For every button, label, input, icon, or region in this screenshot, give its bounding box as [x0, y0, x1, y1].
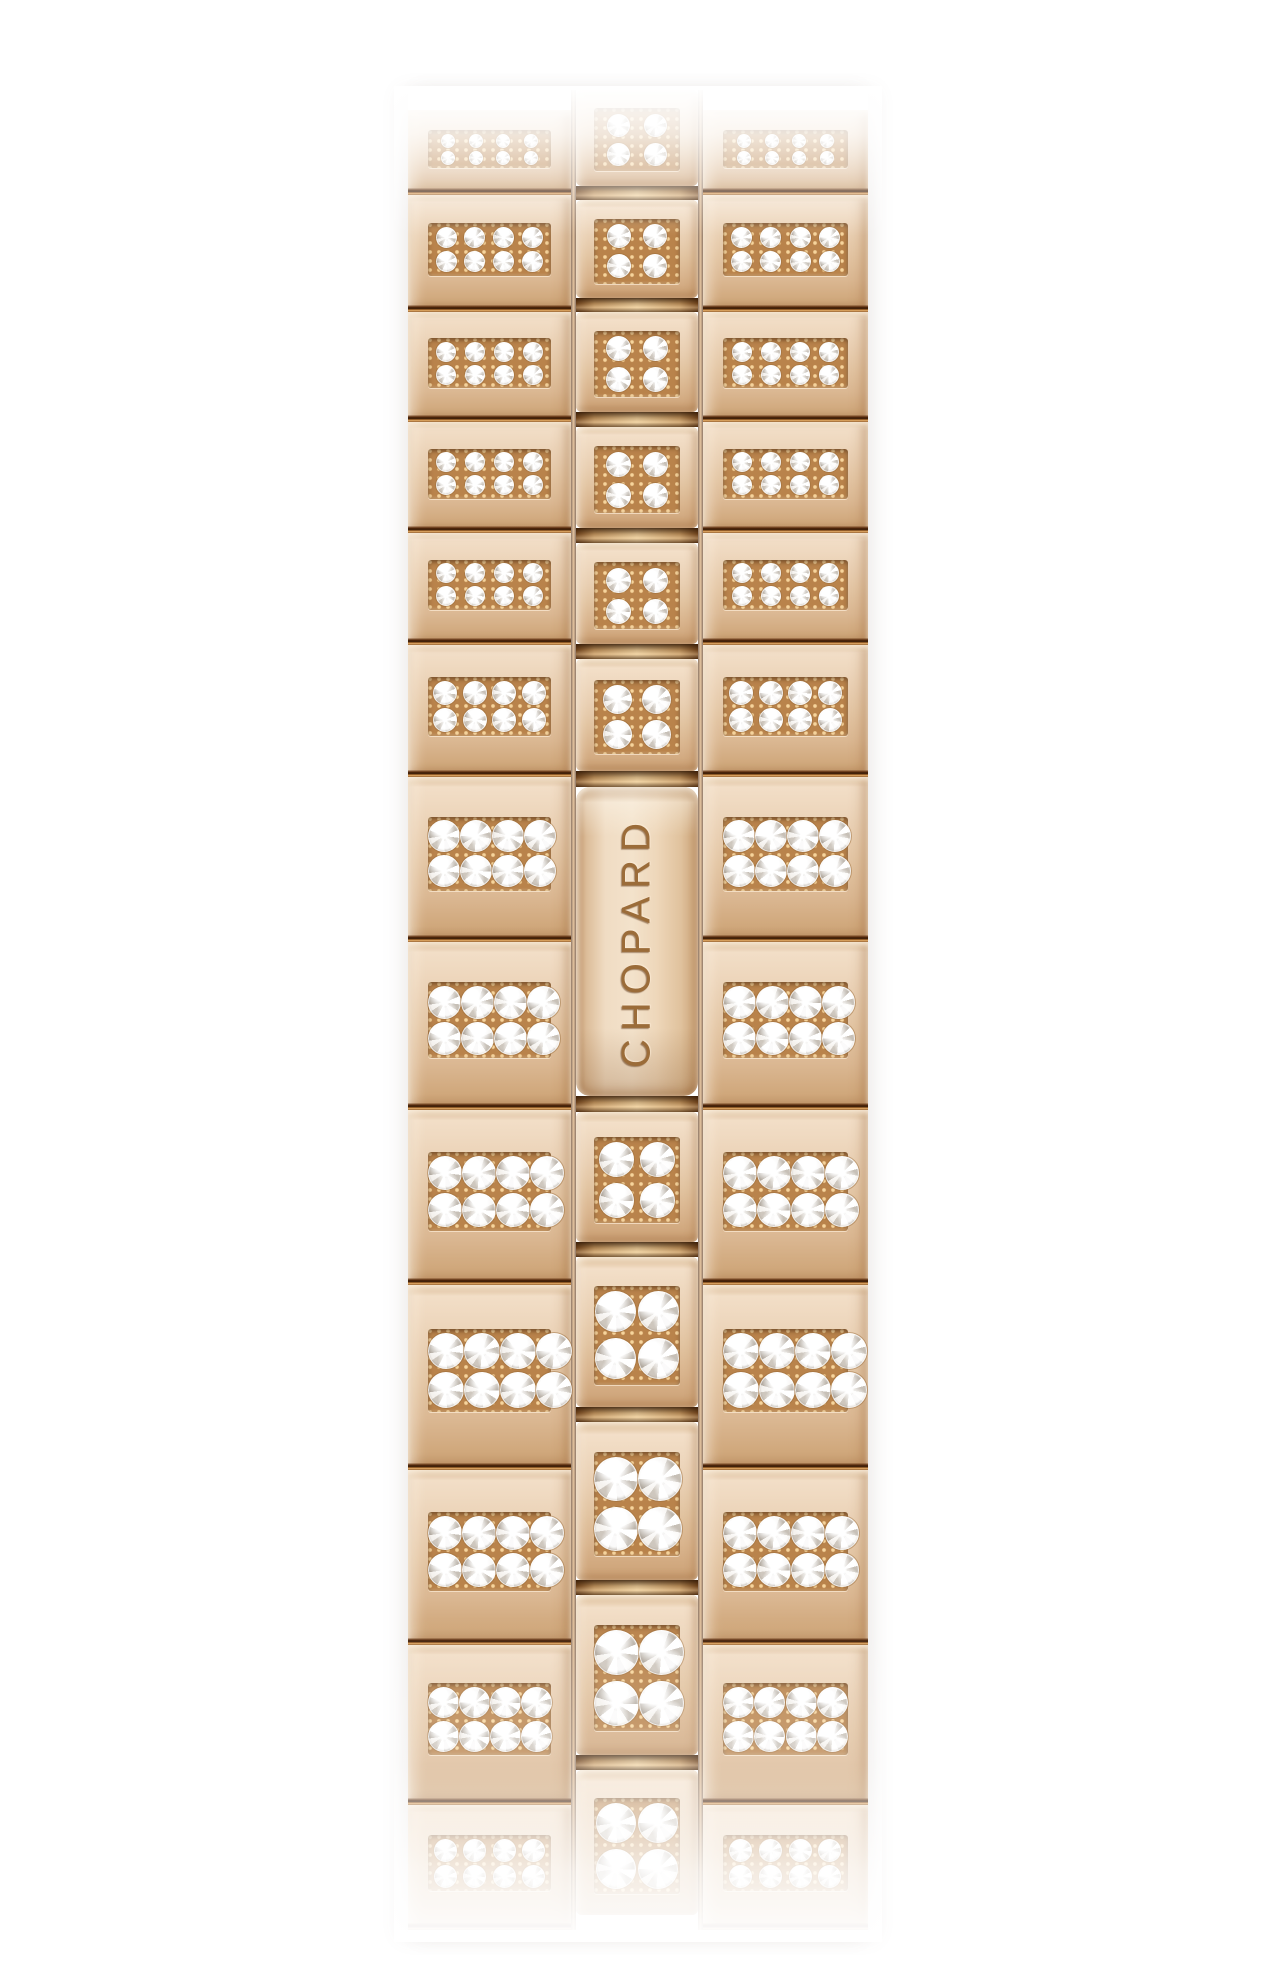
link-divider	[408, 526, 571, 533]
diamond	[819, 586, 839, 606]
diamond	[818, 1865, 841, 1888]
side-link	[703, 1110, 868, 1285]
diamond-panel	[594, 680, 679, 754]
diamond	[433, 362, 459, 388]
diamond	[756, 247, 786, 277]
diamond	[601, 478, 636, 513]
diamond	[523, 586, 543, 606]
diamond	[603, 138, 636, 171]
diamond	[494, 149, 512, 167]
diamond	[729, 362, 755, 388]
diamond	[817, 1687, 848, 1718]
link-divider	[703, 1638, 868, 1645]
diamond	[787, 583, 813, 609]
diamond	[524, 151, 538, 165]
diamond	[422, 1511, 466, 1555]
link-connector	[576, 1096, 698, 1112]
diamond	[601, 362, 636, 397]
link-divider	[703, 1463, 868, 1470]
diamond	[818, 1839, 841, 1862]
diamond	[423, 1682, 463, 1722]
diamond	[639, 1681, 684, 1726]
link-connector	[576, 644, 698, 659]
diamond	[735, 149, 753, 167]
diamond	[643, 483, 668, 508]
diamond-panel	[723, 677, 848, 736]
diamond	[782, 850, 824, 892]
diamond	[786, 1548, 830, 1592]
link-divider	[408, 415, 571, 422]
side-link	[408, 110, 571, 195]
diamond	[423, 1017, 466, 1060]
diamond	[588, 1450, 645, 1507]
diamond	[459, 1687, 490, 1718]
center-link	[576, 312, 698, 412]
center-link	[576, 1595, 698, 1755]
link-connector	[576, 1755, 698, 1770]
diamond	[460, 247, 490, 277]
diamond	[423, 981, 466, 1024]
diamond	[491, 362, 517, 388]
diamond	[757, 361, 785, 389]
diamond	[460, 820, 492, 852]
bracelet-right-column	[703, 90, 868, 1938]
diamond	[718, 1548, 762, 1592]
diamond	[762, 148, 782, 168]
diamond	[462, 1156, 496, 1190]
link-divider	[703, 770, 868, 777]
side-link	[703, 422, 868, 533]
link-divider	[408, 1278, 571, 1285]
diamond	[458, 703, 492, 737]
diamond	[729, 560, 755, 586]
diamond-panel	[594, 331, 679, 397]
diamond	[524, 855, 556, 887]
center-link	[576, 90, 698, 186]
diamond	[643, 568, 668, 593]
diamond-panel	[428, 449, 552, 499]
side-link	[408, 422, 571, 533]
diamond	[729, 472, 755, 498]
diamond-panel	[594, 446, 679, 513]
diamond	[536, 1333, 572, 1369]
link-connector	[576, 1407, 698, 1422]
center-link	[576, 1422, 698, 1580]
center-link	[576, 427, 698, 528]
diamond-panel	[428, 1835, 552, 1891]
diamond-panel	[723, 1329, 848, 1412]
diamond	[433, 339, 459, 365]
link-divider	[408, 305, 571, 312]
diamond	[820, 151, 834, 165]
center-link	[576, 1257, 698, 1407]
diamond	[638, 1507, 682, 1551]
diamond	[818, 708, 842, 732]
center-link	[576, 1770, 698, 1915]
diamond	[429, 704, 460, 735]
diamond	[755, 820, 787, 852]
diamond	[588, 1624, 647, 1683]
diamond-panel	[723, 1835, 848, 1891]
diamond	[433, 472, 459, 498]
diamond	[640, 1183, 675, 1218]
side-link	[408, 645, 571, 777]
diamond	[490, 1188, 534, 1232]
diamond	[786, 338, 814, 366]
diamond	[726, 1861, 756, 1891]
diamond	[523, 365, 543, 385]
diamond	[786, 248, 813, 275]
diamond	[536, 1372, 572, 1408]
side-link	[703, 110, 868, 195]
diamond	[728, 248, 755, 275]
diamond-panel	[594, 1798, 679, 1894]
diamond	[432, 224, 459, 251]
diamond	[819, 251, 840, 272]
link-divider	[703, 1103, 868, 1110]
diamond	[761, 452, 781, 472]
link-divider	[703, 305, 868, 312]
diamond	[718, 815, 760, 857]
diamond	[819, 563, 839, 583]
diamond	[825, 1156, 859, 1190]
product-photo: CHOPARD	[0, 0, 1276, 1985]
diamond	[524, 134, 538, 148]
diamond	[756, 986, 789, 1019]
diamond	[644, 143, 667, 166]
diamond	[718, 1682, 758, 1722]
diamond	[490, 248, 517, 275]
diamond-panel	[723, 449, 848, 499]
diamond	[422, 1548, 466, 1592]
diamond	[717, 1328, 764, 1375]
diamond	[787, 472, 813, 498]
diamond	[522, 708, 546, 732]
link-divider	[703, 1278, 868, 1285]
diamond	[640, 1142, 675, 1177]
diamond-panel	[428, 223, 552, 276]
link-divider	[408, 935, 571, 942]
diamond	[523, 475, 543, 495]
diamond	[422, 1328, 469, 1375]
link-divider	[408, 1798, 571, 1805]
diamond	[523, 563, 543, 583]
diamond	[422, 1188, 466, 1232]
diamond	[819, 820, 851, 852]
diamond-panel	[594, 219, 679, 284]
watch-bracelet: CHOPARD	[408, 90, 868, 1938]
diamond	[825, 1193, 859, 1227]
side-link	[408, 195, 571, 312]
diamond	[464, 227, 485, 248]
link-divider	[703, 188, 868, 195]
diamond	[490, 338, 518, 366]
diamond	[489, 1017, 532, 1060]
diamond-panel	[428, 1152, 552, 1231]
diamond	[530, 1156, 564, 1190]
diamond-panel	[723, 560, 848, 610]
diamond	[530, 1193, 564, 1227]
diamond	[423, 1716, 463, 1756]
diamond	[527, 986, 560, 1019]
diamond	[642, 720, 671, 749]
side-link	[408, 1285, 571, 1470]
diamond-panel	[594, 1452, 679, 1556]
diamond	[729, 449, 755, 475]
side-link	[408, 1470, 571, 1645]
diamond	[786, 1188, 830, 1232]
side-link	[703, 195, 868, 312]
diamond	[638, 1803, 678, 1843]
diamond	[461, 582, 489, 610]
link-divider	[408, 638, 571, 645]
diamond-panel	[594, 1137, 679, 1223]
link-connector	[576, 1580, 698, 1595]
diamond	[787, 362, 813, 388]
diamond	[587, 1330, 645, 1388]
diamond	[818, 681, 842, 705]
diamond	[493, 131, 513, 151]
diamond	[523, 342, 543, 362]
side-link	[703, 777, 868, 942]
diamond-panel	[428, 817, 552, 891]
diamond	[822, 986, 855, 1019]
diamond	[729, 583, 755, 609]
center-link	[576, 200, 698, 298]
diamond	[594, 1136, 640, 1182]
link-divider	[703, 638, 868, 645]
diamond	[489, 1861, 519, 1891]
diamond	[422, 1151, 466, 1195]
diamond	[757, 1156, 791, 1190]
diamond	[718, 850, 760, 892]
diamond	[785, 223, 815, 253]
link-divider	[408, 1463, 571, 1470]
diamond	[461, 986, 494, 1019]
diamond	[825, 1516, 859, 1550]
diamond	[461, 471, 489, 499]
diamond	[487, 676, 521, 710]
link-connector	[576, 412, 698, 427]
diamond-panel	[428, 677, 552, 736]
diamond	[718, 1017, 761, 1060]
diamond	[781, 1716, 821, 1756]
diamond	[464, 1333, 500, 1369]
diamond	[490, 1548, 534, 1592]
diamond	[757, 1516, 791, 1550]
diamond	[644, 114, 667, 137]
diamond	[439, 132, 457, 150]
diamond	[759, 681, 783, 705]
diamond	[784, 1834, 817, 1867]
diamond	[638, 1457, 682, 1501]
diamond	[469, 134, 483, 148]
diamond-panel	[428, 560, 552, 610]
diamond	[639, 1630, 684, 1675]
diamond	[785, 1861, 815, 1891]
link-connector	[576, 771, 698, 787]
diamond	[422, 1367, 469, 1414]
diamond	[489, 704, 520, 735]
diamond	[433, 583, 459, 609]
diamond	[831, 1372, 867, 1408]
diamond	[465, 563, 485, 583]
diamond	[761, 342, 781, 362]
diamond	[784, 1017, 827, 1060]
diamond	[602, 249, 636, 283]
side-link	[703, 942, 868, 1110]
link-connector	[576, 1242, 698, 1257]
diamond	[429, 677, 460, 708]
diamond	[790, 131, 810, 151]
diamond	[819, 365, 839, 385]
diamond-panel	[594, 562, 679, 629]
diamond	[638, 1338, 679, 1379]
center-link	[576, 1112, 698, 1242]
diamond	[718, 1188, 762, 1232]
diamond	[589, 1285, 642, 1338]
link-divider	[408, 1638, 571, 1645]
diamond	[602, 448, 635, 481]
diamond	[817, 1721, 848, 1752]
diamond	[527, 1022, 560, 1055]
diamond	[590, 1797, 642, 1849]
diamond	[643, 224, 667, 248]
diamond	[754, 1687, 785, 1718]
diamond-panel	[428, 130, 552, 168]
diamond	[642, 685, 671, 714]
diamond	[491, 583, 517, 609]
diamond	[522, 1839, 545, 1862]
bracelet-left-column	[408, 90, 571, 1938]
diamond	[465, 452, 485, 472]
diamond	[487, 850, 529, 892]
diamond-panel	[723, 817, 848, 891]
diamond	[754, 1860, 787, 1893]
diamond	[760, 227, 781, 248]
diamond-panel	[723, 982, 848, 1058]
diamond	[759, 1839, 782, 1862]
diamond	[759, 1333, 795, 1369]
diamond	[465, 342, 485, 362]
center-link	[576, 543, 698, 644]
link-divider	[703, 1923, 868, 1930]
side-link	[703, 1805, 868, 1930]
side-link	[408, 1805, 571, 1930]
diamond	[831, 1333, 867, 1369]
link-connector	[576, 186, 698, 200]
diamond	[754, 703, 788, 737]
side-link	[408, 1110, 571, 1285]
diamond-panel	[723, 338, 848, 388]
diamond	[522, 681, 546, 705]
diamond	[718, 1511, 762, 1555]
diamond-panel	[594, 1625, 679, 1731]
side-link	[703, 533, 868, 645]
link-divider	[408, 770, 571, 777]
bracelet-center-column: CHOPARD	[576, 90, 698, 1938]
side-link	[408, 942, 571, 1110]
diamond	[461, 361, 489, 389]
side-link	[703, 1285, 868, 1470]
diamond	[786, 559, 814, 587]
clasp: CHOPARD	[576, 787, 698, 1096]
diamond	[765, 134, 779, 148]
diamond	[726, 1835, 756, 1865]
diamond	[439, 149, 457, 167]
diamond-panel	[428, 1683, 552, 1755]
diamond	[530, 1516, 564, 1550]
clasp-brand-text: CHOPARD	[576, 787, 698, 1096]
diamond	[522, 1865, 545, 1888]
diamond	[825, 1553, 859, 1587]
diamond	[488, 1834, 521, 1867]
diamond	[604, 110, 634, 140]
link-divider	[408, 1923, 571, 1930]
diamond	[485, 1716, 525, 1756]
diamond	[819, 227, 840, 248]
diamond	[430, 1861, 460, 1891]
diamond	[602, 564, 635, 597]
diamond	[728, 224, 755, 251]
side-link	[703, 312, 868, 422]
link-divider	[703, 526, 868, 533]
diamond	[423, 850, 465, 892]
diamond-panel	[428, 1329, 552, 1412]
side-link	[408, 312, 571, 422]
diamond	[729, 339, 755, 365]
diamond	[521, 1687, 552, 1718]
diamond-panel	[723, 1152, 848, 1231]
side-link	[408, 777, 571, 942]
diamond-panel	[723, 1512, 848, 1591]
diamond	[819, 855, 851, 887]
diamond	[603, 220, 634, 251]
diamond	[592, 1175, 641, 1224]
diamond-panel	[428, 1512, 552, 1591]
diamond	[463, 1839, 486, 1862]
diamond	[524, 820, 556, 852]
diamond-panel	[428, 338, 552, 388]
link-connector	[576, 528, 698, 543]
diamond	[521, 1721, 552, 1752]
diamond	[643, 599, 668, 624]
diamond	[432, 248, 459, 275]
diamond	[790, 149, 808, 167]
diamond-panel	[723, 130, 848, 168]
diamond	[466, 148, 486, 168]
diamond	[490, 559, 518, 587]
diamond	[601, 594, 636, 629]
diamond	[718, 981, 761, 1024]
diamond	[597, 714, 638, 755]
diamond	[523, 452, 543, 472]
diamond	[430, 1835, 460, 1865]
diamond	[819, 475, 839, 495]
diamond	[819, 342, 839, 362]
center-link	[576, 659, 698, 771]
side-link	[703, 1470, 868, 1645]
link-divider	[703, 935, 868, 942]
diamond	[725, 704, 756, 735]
diamond	[489, 223, 519, 253]
link-divider	[408, 188, 571, 195]
diamond	[638, 1849, 678, 1889]
diamond	[822, 1022, 855, 1055]
diamond	[718, 1151, 762, 1195]
diamond	[785, 704, 816, 735]
diamond	[459, 1860, 492, 1893]
